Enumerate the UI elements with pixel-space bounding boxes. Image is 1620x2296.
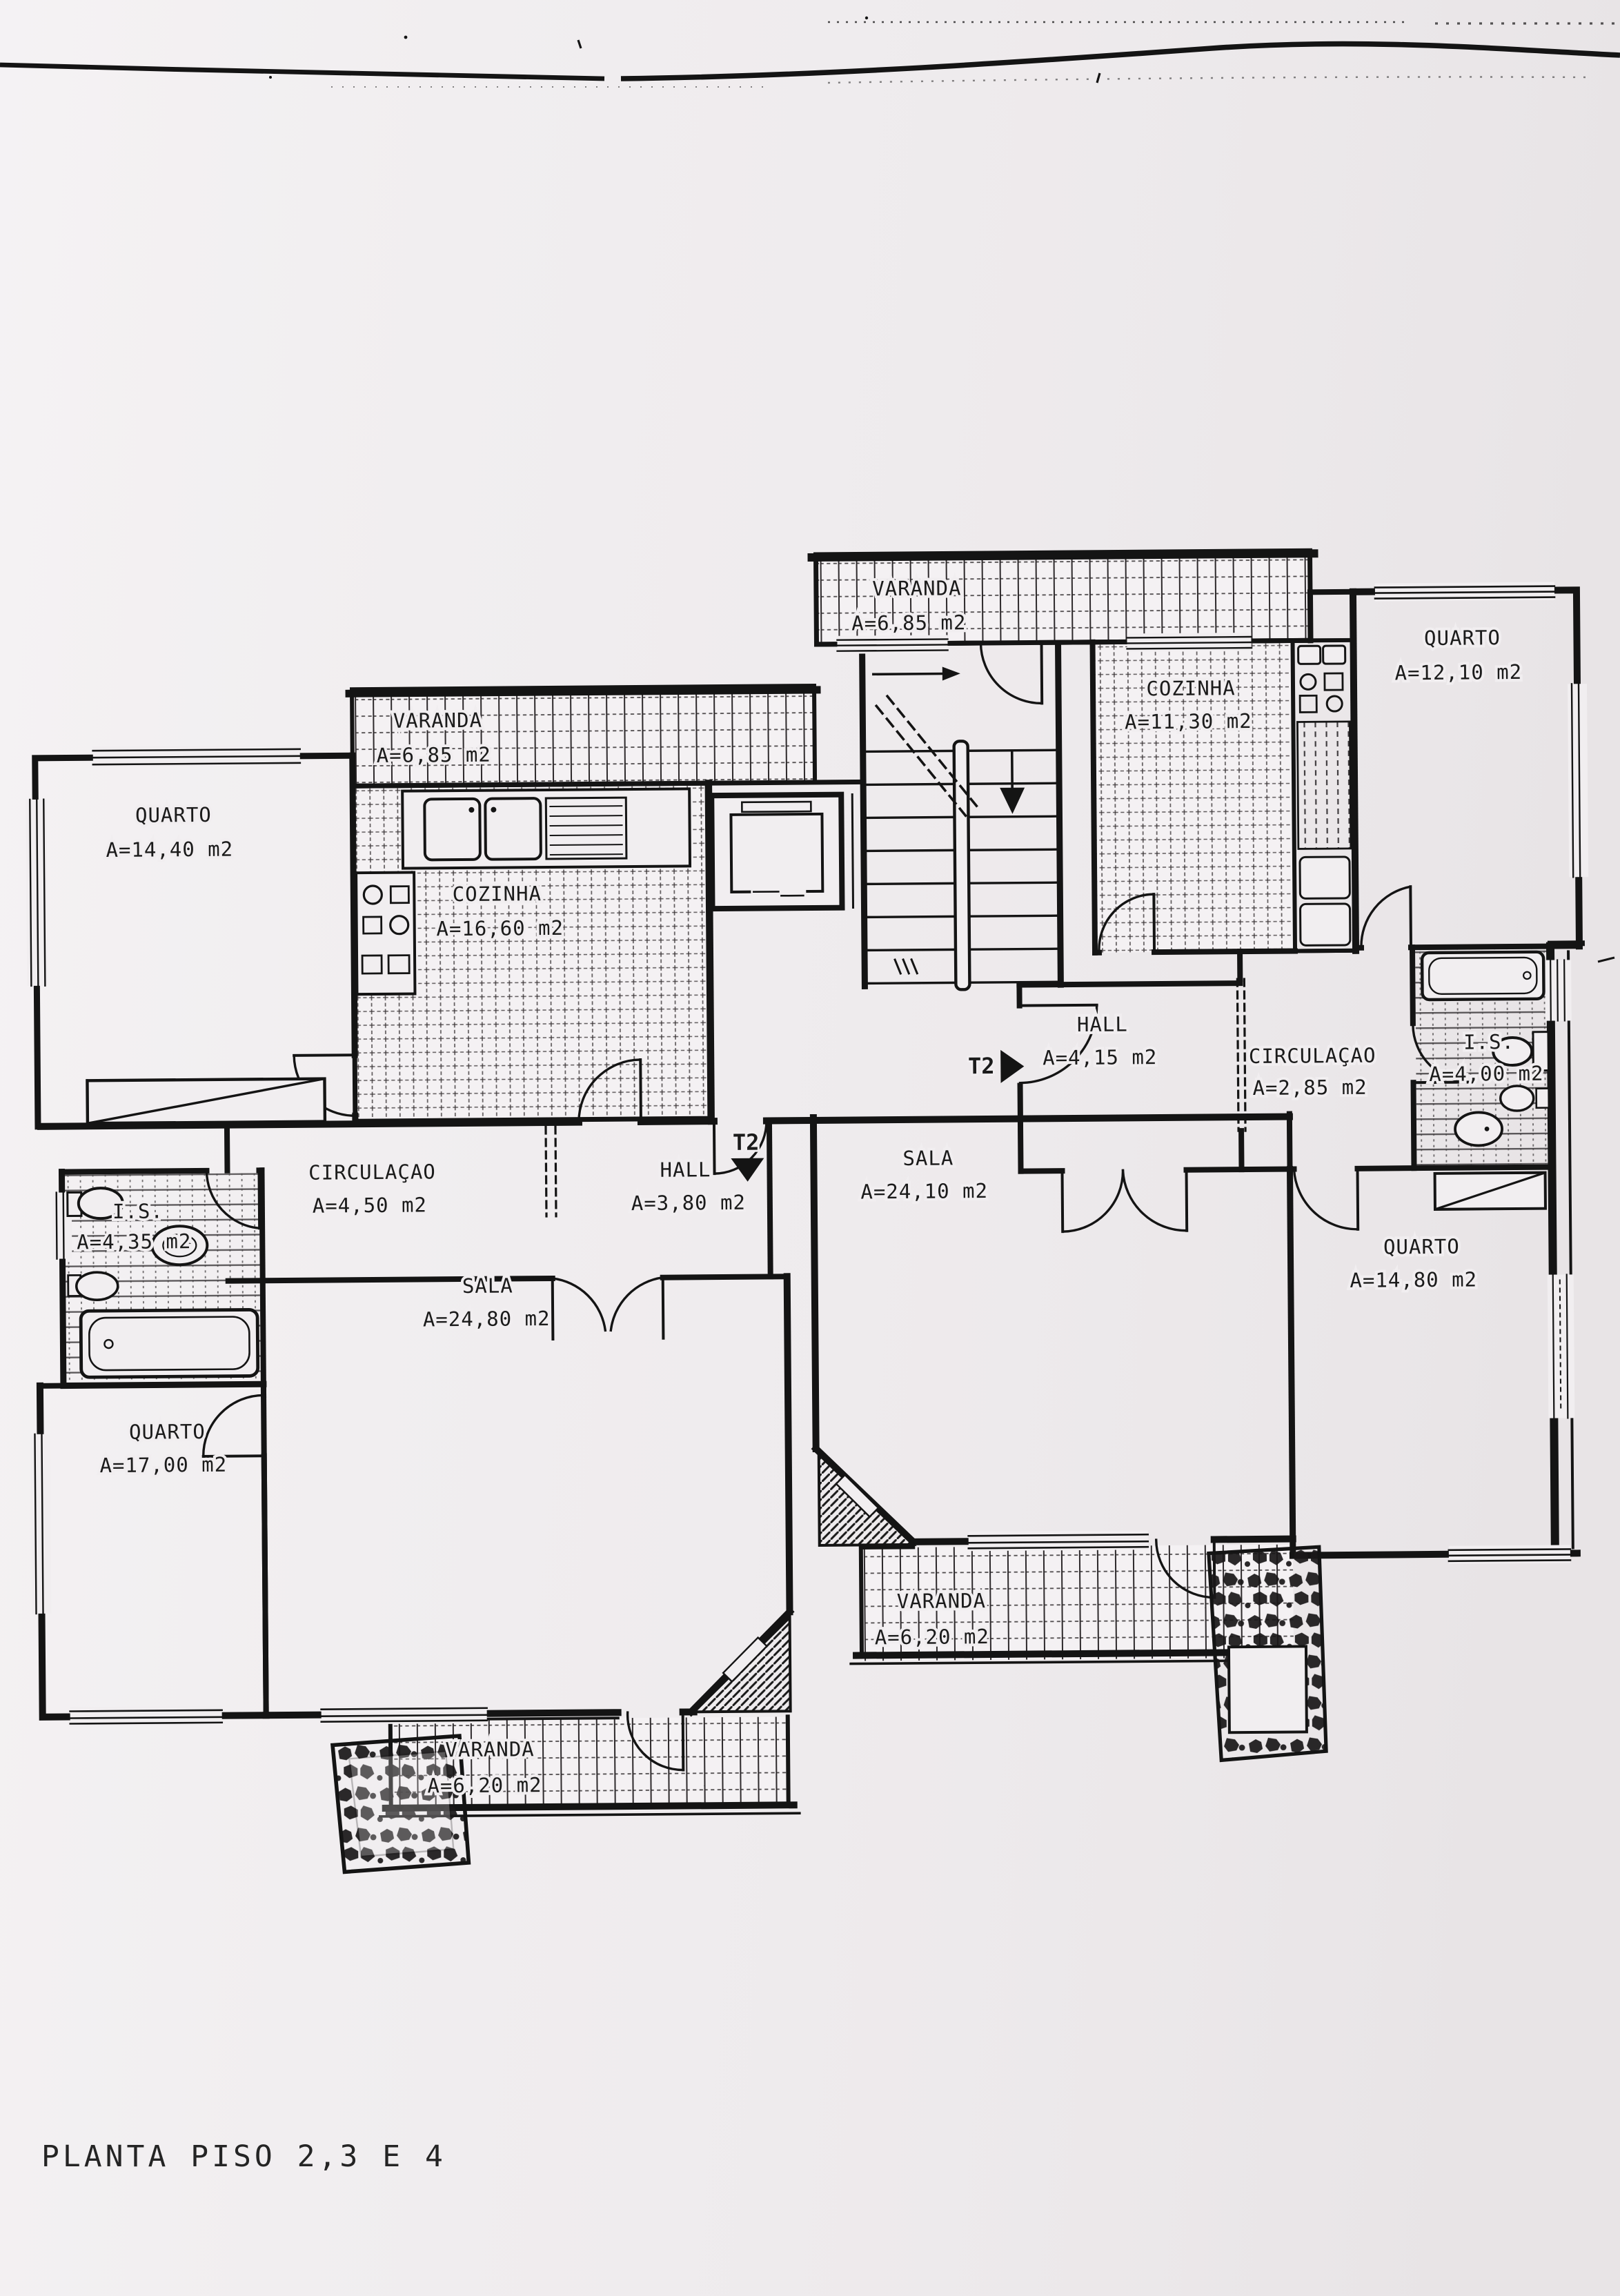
- washbasin-icon-right: [1455, 1112, 1502, 1146]
- svg-text:QUARTO: QUARTO: [1424, 626, 1501, 650]
- planter-bottom-right: [1209, 1547, 1326, 1760]
- svg-text:COZINHA: COZINHA: [453, 882, 542, 906]
- window-quarto-left-bottom: [70, 1706, 222, 1727]
- svg-text:A=4,15 m2: A=4,15 m2: [1043, 1045, 1157, 1069]
- window-sala-right: [969, 1530, 1148, 1551]
- svg-text:A=11,30 m2: A=11,30 m2: [1125, 709, 1252, 733]
- svg-text:A=17,00 m2: A=17,00 m2: [99, 1453, 227, 1477]
- svg-text:CIRCULAÇAO: CIRCULAÇAO: [308, 1160, 436, 1184]
- window-quarto-right-top: [1375, 582, 1554, 602]
- wardrobe-right-icon: [1435, 1173, 1545, 1209]
- window-quarto-right-top-side: [1568, 684, 1588, 877]
- scanned-floor-plan-page: VARANDAA=6,85 m2 COZINHAA=11,30 m2 QUART…: [0, 0, 1620, 2296]
- svg-text:A=16,60 m2: A=16,60 m2: [436, 916, 564, 940]
- elevator-icon: [711, 795, 842, 909]
- svg-text:QUARTO: QUARTO: [1383, 1235, 1460, 1259]
- stove-icon: [356, 873, 415, 995]
- window-left-wall-quarto1440: [26, 800, 48, 986]
- floor-plan-svg: VARANDAA=6,85 m2 COZINHAA=11,30 m2 QUART…: [0, 0, 1620, 2296]
- window-is-right-side: [1545, 960, 1572, 1020]
- window-quarto-left-bottom-side: [30, 1434, 51, 1614]
- svg-text:A=2,85 m2: A=2,85 m2: [1252, 1076, 1367, 1100]
- svg-text:A=4,35 m2: A=4,35 m2: [77, 1229, 191, 1254]
- cabinet-icon: [1300, 857, 1350, 899]
- svg-text:SALA: SALA: [902, 1146, 954, 1170]
- svg-text:SALA: SALA: [462, 1274, 513, 1298]
- svg-text:A=3,80 m2: A=3,80 m2: [631, 1191, 746, 1215]
- svg-text:VARANDA: VARANDA: [445, 1737, 534, 1761]
- svg-text:T2: T2: [733, 1129, 760, 1156]
- svg-text:A=6,20 m2: A=6,20 m2: [875, 1625, 989, 1649]
- svg-text:A=24,10 m2: A=24,10 m2: [860, 1179, 988, 1203]
- window-balcony-top-left-segment: [837, 635, 947, 653]
- svg-text:VARANDA: VARANDA: [897, 1589, 986, 1613]
- bidet-icon: [68, 1272, 118, 1300]
- svg-text:VARANDA: VARANDA: [393, 709, 482, 733]
- svg-text:T2: T2: [968, 1053, 995, 1079]
- window-quarto-right-bottom: [1449, 1545, 1570, 1563]
- balcony-left-tiles: [352, 686, 815, 786]
- svg-text:A=4,00 m2: A=4,00 m2: [1429, 1062, 1543, 1086]
- window-sala-left: [322, 1704, 487, 1725]
- svg-text:HALL: HALL: [1077, 1012, 1128, 1036]
- svg-text:HALL: HALL: [660, 1158, 711, 1182]
- svg-text:QUARTO: QUARTO: [129, 1420, 206, 1444]
- drainer-icon: [546, 798, 626, 859]
- svg-text:A=14,40 m2: A=14,40 m2: [106, 838, 233, 862]
- svg-text:A=14,80 m2: A=14,80 m2: [1350, 1267, 1477, 1291]
- wardrobe-left-icon: [87, 1079, 324, 1124]
- bathtub-icon-right: [1422, 952, 1544, 1000]
- svg-text:A=6,85 m2: A=6,85 m2: [377, 743, 491, 767]
- svg-text:COZINHA: COZINHA: [1146, 676, 1235, 700]
- paper-shading: [0, 0, 1620, 2296]
- svg-text:I.S.: I.S.: [1463, 1030, 1514, 1054]
- svg-text:A=12,10 m2: A=12,10 m2: [1394, 660, 1522, 684]
- svg-text:QUARTO: QUARTO: [135, 803, 212, 827]
- window-cozinha-right-to-balcony: [1127, 633, 1251, 651]
- window-quarto-left-top: [93, 745, 300, 767]
- bathtub-icon: [81, 1309, 258, 1377]
- svg-text:I.S.: I.S.: [112, 1199, 164, 1223]
- floor-title: PLANTA PISO 2,3 E 4: [41, 2139, 446, 2174]
- svg-text:A=24,80 m2: A=24,80 m2: [423, 1307, 551, 1331]
- bidet-icon-right: [1501, 1086, 1549, 1111]
- svg-text:A=6,85 m2: A=6,85 m2: [851, 611, 966, 635]
- svg-text:VARANDA: VARANDA: [872, 576, 961, 600]
- cabinet-icon-2: [1300, 904, 1350, 946]
- svg-text:A=6,20 m2: A=6,20 m2: [427, 1773, 542, 1797]
- svg-text:A=4,50 m2: A=4,50 m2: [313, 1193, 427, 1217]
- counter-icon: [1297, 722, 1350, 849]
- svg-text:CIRCULAÇAO: CIRCULAÇAO: [1249, 1044, 1376, 1068]
- window-quarto-right-bottom-side: [1548, 1274, 1575, 1418]
